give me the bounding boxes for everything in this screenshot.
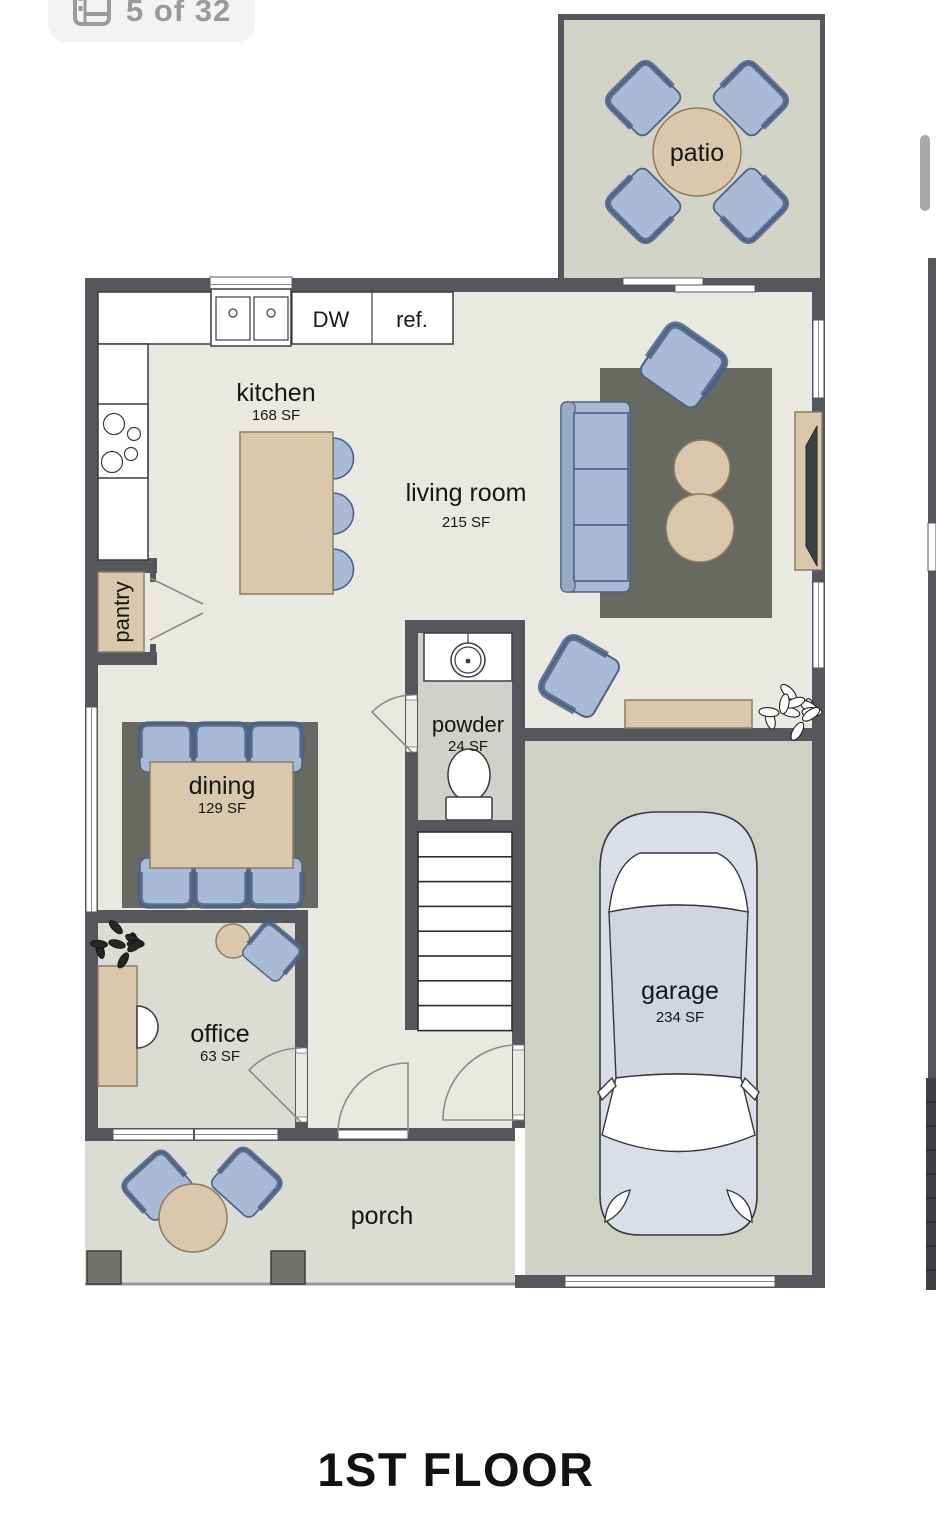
office-area: 63 SF <box>200 1048 240 1065</box>
floor-plan-image[interactable]: patio DW ref. kitchen 168 SF <box>0 0 936 1536</box>
kitchen-island <box>240 432 333 594</box>
porch-post <box>87 1251 121 1284</box>
garage-room: garage 234 SF <box>598 812 759 1235</box>
floor-title: 1ST FLOOR <box>0 1442 912 1497</box>
dining-area: 129 SF <box>198 800 246 817</box>
porch-post <box>271 1251 305 1284</box>
powder-sink <box>424 633 512 681</box>
office-desk <box>98 966 137 1086</box>
office-label: office <box>190 1020 249 1048</box>
tv <box>806 426 817 566</box>
coffee-table <box>666 494 734 562</box>
refrigerator-label: ref. <box>396 307 428 332</box>
powder-area: 24 SF <box>448 738 488 755</box>
kitchen-area: 168 SF <box>252 407 300 424</box>
dishwasher-label: DW <box>313 307 350 332</box>
sliding-door <box>623 278 703 285</box>
pantry-label: pantry <box>109 581 134 642</box>
living-room-area: 215 SF <box>442 514 490 531</box>
porch-label: porch <box>351 1202 414 1230</box>
patio-label: patio <box>670 139 724 167</box>
garage-label: garage <box>641 977 719 1005</box>
dining-label: dining <box>189 772 256 800</box>
porch-table <box>159 1184 227 1252</box>
console-table <box>625 700 752 728</box>
neighbor-wall <box>928 258 936 1080</box>
kitchen-label: kitchen <box>236 379 315 407</box>
cooktop <box>98 404 148 478</box>
coffee-table <box>674 440 730 496</box>
garage-area: 234 SF <box>656 1009 704 1026</box>
dining-room: dining 129 SF <box>140 724 302 906</box>
sofa <box>561 402 630 592</box>
staircase <box>418 832 512 1031</box>
powder-label: powder <box>432 712 504 737</box>
toilet <box>446 749 492 820</box>
neighbor-stairs <box>926 1078 936 1290</box>
front-door-sill <box>338 1130 408 1139</box>
living-room-label: living room <box>406 479 527 507</box>
kitchen-sink <box>211 289 291 346</box>
